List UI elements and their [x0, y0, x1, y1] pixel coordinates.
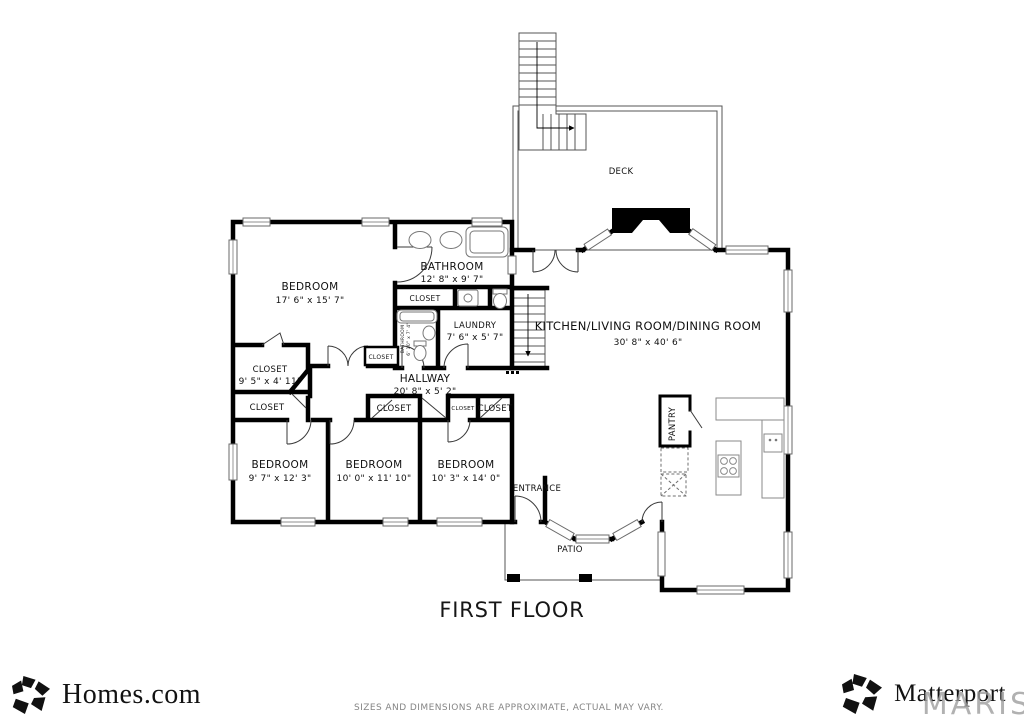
floorplan-page: BEDROOM 17' 6" x 15' 7" BATHROOM 12' 8" … — [0, 0, 1024, 723]
label-bedroom-sw-dims: 9' 7" x 12' 3" — [249, 474, 312, 484]
label-closet-2: CLOSET — [250, 403, 285, 413]
homes-logo-text: Homes.com — [62, 679, 201, 711]
label-pantry: PANTRY — [668, 406, 678, 441]
exterior-stairs — [519, 33, 586, 150]
label-closet-main-dims: 9' 5" x 4' 11" — [239, 377, 302, 387]
kitchen-fixtures — [716, 398, 784, 498]
kitchen-island — [716, 441, 741, 495]
fireplace — [612, 208, 690, 233]
label-deck: DECK — [609, 167, 634, 177]
label-closet-bedroom-se-small: CLOSET — [451, 406, 475, 412]
patio-outline — [505, 524, 662, 582]
label-bathroom-main-dims: 12' 8" x 9' 7" — [421, 275, 484, 285]
label-bathroom-small-name: BATHROOM — [400, 325, 406, 353]
label-bedroom-main-dims: 17' 6" x 15' 7" — [276, 296, 345, 306]
stove — [718, 455, 739, 477]
label-laundry-dims: 7' 6" x 5' 7" — [447, 333, 504, 343]
label-bath-closet: CLOSET — [410, 294, 441, 303]
floor-plan-drawing: BEDROOM 17' 6" x 15' 7" BATHROOM 12' 8" … — [0, 0, 1024, 723]
label-bedroom-sw-name: BEDROOM — [252, 459, 309, 471]
label-closet-bedroom-s: CLOSET — [377, 404, 412, 414]
label-bedroom-s-dims: 10' 0" x 11' 10" — [337, 474, 412, 484]
homes-logo-icon — [12, 676, 50, 714]
patio-post — [579, 574, 592, 582]
label-bathroom-small-dims: 6' 10" x 7' 4" — [406, 322, 412, 356]
label-closet-main-name: CLOSET — [253, 365, 288, 375]
label-great-room-dims: 30' 8" x 40' 6" — [614, 338, 683, 348]
label-closet-bedroom-se: CLOSET — [478, 404, 513, 414]
label-bedroom-se-dims: 10' 3" x 14' 0" — [432, 474, 501, 484]
label-bathroom-main-name: BATHROOM — [420, 261, 483, 273]
label-bedroom-main-name: BEDROOM — [282, 281, 339, 293]
label-hallway-dims: 20' 8" x 5' 2" — [394, 387, 457, 397]
label-hallway-name: HALLWAY — [400, 373, 451, 385]
label-bedroom-s-name: BEDROOM — [346, 459, 403, 471]
label-patio: PATIO — [557, 545, 583, 555]
dashed-appliances — [661, 448, 688, 496]
maris-watermark: MARIS — [922, 687, 1024, 722]
label-laundry-name: LAUNDRY — [454, 321, 497, 331]
matterport-logo-icon — [842, 674, 882, 714]
label-bedroom-se-name: BEDROOM — [438, 459, 495, 471]
label-great-room-name: KITCHEN/LIVING ROOM/DINING ROOM — [535, 319, 762, 333]
label-closet-hall-mini: CLOSET — [368, 354, 393, 361]
disclaimer-text: SIZES AND DIMENSIONS ARE APPROXIMATE, AC… — [354, 703, 664, 713]
label-entrance: ENTRANCE — [513, 484, 561, 494]
patio-post — [507, 574, 520, 582]
floor-title: FIRST FLOOR — [439, 598, 584, 622]
homes-logo: Homes.com — [12, 676, 201, 714]
